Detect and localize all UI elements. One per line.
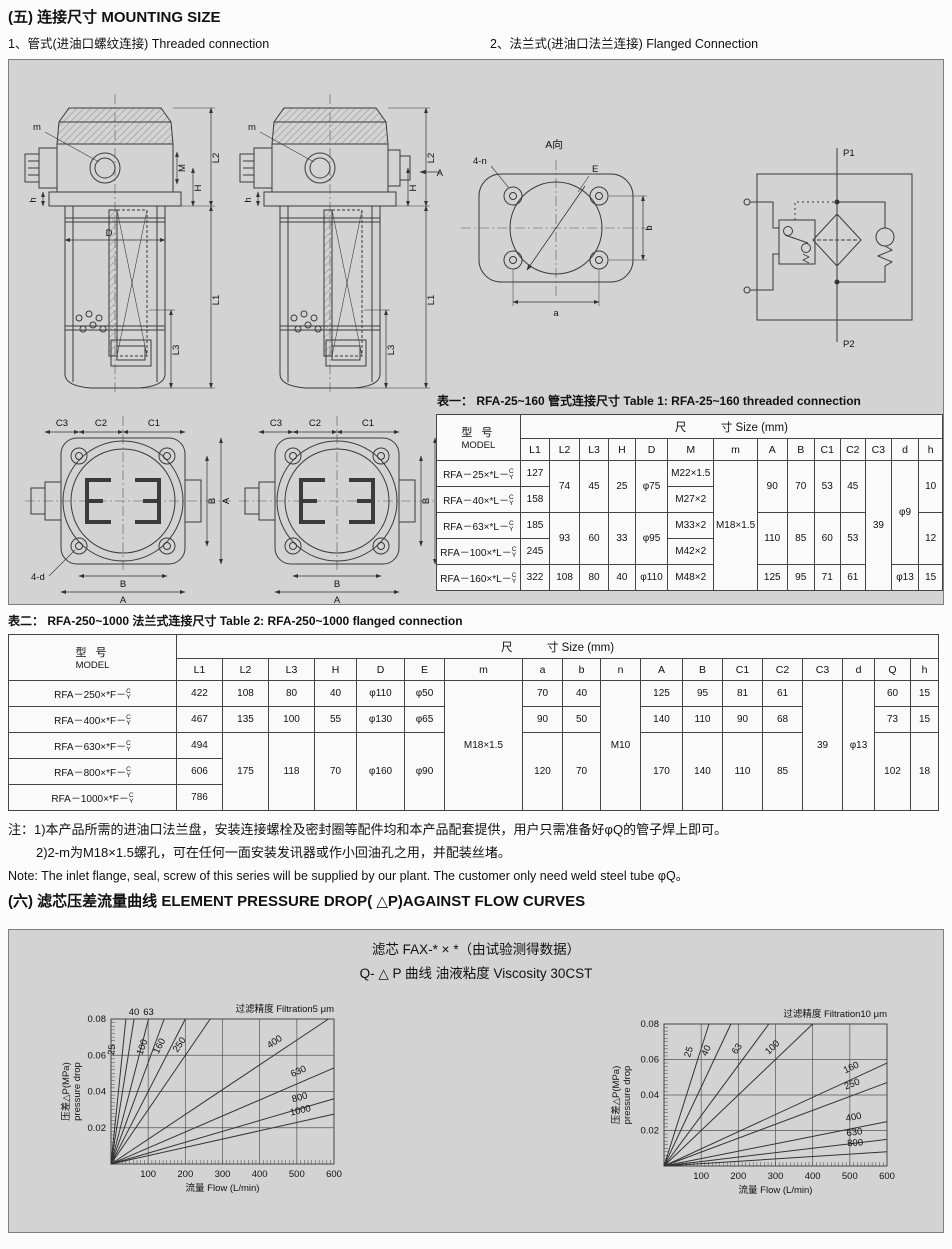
- dim-label-H: H: [193, 184, 204, 191]
- dim-label-C2: C2: [309, 418, 321, 429]
- threaded-connection-table: 型 号MODEL尺 寸 Size (mm)L1L2L3HDMmABC1C2C3d…: [436, 414, 943, 591]
- dim-label-B: B: [421, 498, 432, 504]
- value-cell: 108: [550, 565, 580, 591]
- curve-label-160: 160: [842, 1060, 861, 1077]
- model-cell: RFA－63×*L－CY: [437, 513, 521, 539]
- value-cell: 60: [814, 513, 840, 565]
- dim-label-h: h: [28, 197, 39, 202]
- model-cell: RFA－160×*L－CY: [437, 565, 521, 591]
- x-tick-label: 200: [730, 1171, 746, 1182]
- column-header-cell: L2: [550, 439, 580, 461]
- dim-label-C3: C3: [270, 418, 282, 429]
- value-cell: 100: [269, 707, 315, 733]
- value-cell: M48×2: [668, 565, 714, 591]
- flanged-connection-table: 型 号MODEL尺 寸 Size (mm)L1L2L3HDEmabnABC1C2…: [8, 634, 939, 811]
- value-cell: 53: [814, 461, 840, 513]
- column-header-cell: C1: [723, 659, 763, 681]
- section6-title: (六) 滤芯压差流量曲线 ELEMENT PRESSURE DROP( △P)A…: [8, 890, 585, 911]
- value-cell: φ130: [357, 707, 405, 733]
- y-tick-label: 0.02: [88, 1123, 107, 1134]
- value-cell: 70: [315, 733, 357, 811]
- model-cell: RFA－25×*L－CY: [437, 461, 521, 487]
- value-cell: M18×1.5: [714, 461, 758, 591]
- filtration-rating-label: 过滤精度 Filtration10 μm: [783, 1008, 887, 1020]
- value-cell: 15: [911, 681, 939, 707]
- value-cell: 50: [563, 707, 601, 733]
- model-cell: RFA－800×*F－CY: [9, 759, 177, 785]
- column-header-cell: H: [315, 659, 357, 681]
- value-cell: 70: [563, 733, 601, 811]
- y-tick-label: 0.04: [641, 1090, 660, 1101]
- mounting-drawings-panel: m M H L2 L1 L3 h D: [8, 59, 944, 605]
- x-tick-label: 400: [252, 1169, 268, 1180]
- curve-label-800: 800: [847, 1137, 864, 1149]
- curve-label-40: 40: [129, 1007, 140, 1018]
- curve-label-25: 25: [106, 1044, 118, 1056]
- value-cell: 170: [641, 733, 683, 811]
- value-cell: M10: [601, 681, 641, 811]
- subsection-flanged-title: 2、法兰式(进油口法兰连接) Flanged Connection: [490, 33, 758, 52]
- subsection-threaded-title: 1、管式(进油口螺纹连接) Threaded connection: [8, 33, 269, 52]
- value-cell: 25: [609, 461, 635, 513]
- value-cell: 140: [683, 733, 723, 811]
- curve-label-630: 630: [289, 1064, 308, 1080]
- value-cell: φ13: [843, 681, 875, 811]
- value-cell: M33×2: [668, 513, 714, 539]
- y-tick-label: 0.02: [641, 1126, 660, 1137]
- value-cell: 175: [223, 733, 269, 811]
- table-row: RFA－25×*L－CY127744525φ75M22×1.5M18×1.590…: [437, 461, 943, 487]
- filtration-rating-label: 过滤精度 Filtration5 μm: [236, 1003, 334, 1015]
- value-cell: 71: [814, 565, 840, 591]
- dim-label-A: A: [120, 595, 127, 606]
- value-cell: φ65: [405, 707, 445, 733]
- x-tick-label: 100: [693, 1171, 709, 1182]
- value-cell: 606: [177, 759, 223, 785]
- table1-container: 型 号MODEL尺 寸 Size (mm)L1L2L3HDMmABC1C2C3d…: [436, 414, 943, 591]
- flange-face-view-drawing: A向 E 4-n a b: [451, 134, 661, 339]
- value-cell: 322: [520, 565, 550, 591]
- flanged-filter-section-drawing: m H L2 L1 L3 h A: [234, 88, 444, 400]
- curve-label-250: 250: [843, 1077, 862, 1093]
- model-cell: RFA－40×*L－CY: [437, 487, 521, 513]
- column-header-cell: b: [563, 659, 601, 681]
- charts-title-line2: Q- △ P 曲线 油液粘度 Viscosity 30CST: [9, 962, 943, 982]
- table2-title: 表二： RFA-250~1000 法兰式连接尺寸 Table 2: RFA-25…: [8, 612, 463, 629]
- column-header-cell: A: [757, 439, 787, 461]
- value-cell: 60: [875, 681, 911, 707]
- y-tick-label: 0.04: [88, 1087, 107, 1098]
- value-cell: 494: [177, 733, 223, 759]
- port-label-p1: P1: [843, 148, 855, 159]
- dim-label-C3: C3: [56, 418, 68, 429]
- dim-label-C1: C1: [362, 418, 374, 429]
- x-axis-label: 流量 Flow (L/min): [739, 1184, 813, 1196]
- dim-label-L3: L3: [386, 345, 397, 356]
- value-cell: 95: [683, 681, 723, 707]
- pressure-drop-chart-5um: 1002003004005006000.020.040.060.08254063…: [57, 982, 357, 1212]
- value-cell: 15: [919, 565, 943, 591]
- y-tick-label: 0.08: [641, 1019, 660, 1030]
- datasheet-page: (五) 连接尺寸 MOUNTING SIZE 1、管式(进油口螺纹连接) Thr…: [0, 0, 952, 1249]
- dimension-annotations: E 4-n a b: [473, 156, 655, 319]
- curve-label-63: 63: [730, 1041, 745, 1056]
- column-header-cell: B: [683, 659, 723, 681]
- value-cell: 110: [683, 707, 723, 733]
- value-cell: φ9: [891, 461, 919, 565]
- dim-label-h: h: [243, 197, 254, 202]
- model-cell: RFA－400×*F－CY: [9, 707, 177, 733]
- dim-label-m: m: [33, 122, 41, 133]
- bottom-view-drawing-2: C3 C2 C1 B A B A: [237, 408, 447, 604]
- curve-label-250: 250: [171, 1035, 189, 1054]
- column-header-cell: H: [609, 439, 635, 461]
- value-cell: 125: [641, 681, 683, 707]
- dim-label-4d: 4-d: [31, 572, 45, 583]
- value-cell: 80: [579, 565, 608, 591]
- value-cell: 40: [315, 681, 357, 707]
- column-header-cell: m: [714, 439, 758, 461]
- value-cell: 158: [520, 487, 550, 513]
- column-header-cell: C2: [763, 659, 803, 681]
- dim-label-B: B: [120, 579, 126, 590]
- value-cell: 90: [723, 707, 763, 733]
- dim-label-L2: L2: [426, 153, 437, 164]
- value-cell: 60: [579, 513, 608, 565]
- column-header-cell: M: [668, 439, 714, 461]
- column-header-cell: L1: [177, 659, 223, 681]
- value-cell: 125: [757, 565, 787, 591]
- port-label-p2: P2: [843, 339, 855, 350]
- value-cell: 90: [523, 707, 563, 733]
- x-tick-label: 500: [842, 1171, 858, 1182]
- column-header-cell: C2: [840, 439, 866, 461]
- x-tick-label: 300: [215, 1169, 231, 1180]
- model-cell: RFA－250×*F－CY: [9, 681, 177, 707]
- view-title: A向: [545, 138, 563, 151]
- dimension-annotations: C3 C2 C1 B A B A: [259, 418, 446, 606]
- x-axis-label: 流量 Flow (L/min): [186, 1182, 260, 1194]
- column-header-cell: L3: [269, 659, 315, 681]
- value-cell: 467: [177, 707, 223, 733]
- value-cell: 45: [579, 461, 608, 513]
- curve-label-100: 100: [763, 1038, 782, 1057]
- column-header-cell: C3: [803, 659, 843, 681]
- section5-title: (五) 连接尺寸 MOUNTING SIZE: [8, 6, 221, 27]
- y-axis-label-cn: 压差△P(MPa): [60, 1062, 72, 1121]
- y-tick-label: 0.08: [88, 1014, 107, 1025]
- column-header-cell: L2: [223, 659, 269, 681]
- bottom-view-drawing-1: C3 C2 C1 B A B A 4-d: [23, 408, 233, 604]
- value-cell: 93: [550, 513, 580, 565]
- value-cell: φ75: [635, 461, 668, 513]
- dim-label-4n: 4-n: [473, 156, 487, 167]
- column-header-cell: L1: [520, 439, 550, 461]
- x-tick-label: 400: [805, 1171, 821, 1182]
- value-cell: 102: [875, 733, 911, 811]
- x-tick-label: 200: [177, 1169, 193, 1180]
- dim-label-a: a: [553, 308, 559, 319]
- x-tick-label: 600: [879, 1171, 895, 1182]
- pressure-drop-charts-panel: 滤芯 FAX-* × *（由试验测得数据） Q- △ P 曲线 油液粘度 Vis…: [8, 929, 944, 1233]
- model-header-cell: 型 号MODEL: [9, 635, 177, 681]
- x-tick-label: 500: [289, 1169, 305, 1180]
- column-header-cell: B: [787, 439, 814, 461]
- dim-label-m: m: [248, 122, 256, 133]
- value-cell: 120: [523, 733, 563, 811]
- dim-label-A: A: [221, 497, 232, 504]
- column-header-cell: D: [635, 439, 668, 461]
- value-cell: 33: [609, 513, 635, 565]
- x-tick-label: 300: [768, 1171, 784, 1182]
- column-header-cell: m: [445, 659, 523, 681]
- column-header-cell: L3: [579, 439, 608, 461]
- value-cell: 61: [763, 681, 803, 707]
- value-cell: 12: [919, 513, 943, 565]
- dim-label-C1: C1: [148, 418, 160, 429]
- dim-label-L2: L2: [211, 153, 222, 164]
- column-header-cell: A: [641, 659, 683, 681]
- value-cell: 80: [269, 681, 315, 707]
- curve-label-63: 63: [143, 1007, 154, 1018]
- note-line-2: 2)2-m为M18×1.5螺孔，可在任何一面安装发讯器或作小回油孔之用，并配装丝…: [36, 842, 511, 861]
- hydraulic-circuit-symbol: P1 P2: [727, 142, 937, 352]
- value-cell: 55: [315, 707, 357, 733]
- dim-label-L1: L1: [211, 295, 222, 306]
- column-header-cell: C1: [814, 439, 840, 461]
- value-cell: 108: [223, 681, 269, 707]
- value-cell: 40: [563, 681, 601, 707]
- value-cell: φ160: [357, 733, 405, 811]
- value-cell: 95: [787, 565, 814, 591]
- value-cell: 40: [609, 565, 635, 591]
- value-cell: 73: [875, 707, 911, 733]
- note-line-1: 注：1)本产品所需的进油口法兰盘，安装连接螺栓及密封圈等配件均和本产品配套提供，…: [8, 819, 727, 838]
- value-cell: 140: [641, 707, 683, 733]
- dim-label-E: E: [592, 164, 598, 175]
- value-cell: φ95: [635, 513, 668, 565]
- value-cell: 39: [803, 681, 843, 811]
- value-cell: 15: [911, 707, 939, 733]
- value-cell: 786: [177, 785, 223, 811]
- model-cell: RFA－100×*L－CY: [437, 539, 521, 565]
- value-cell: φ90: [405, 733, 445, 811]
- column-header-cell: C3: [866, 439, 892, 461]
- value-cell: 53: [840, 513, 866, 565]
- value-cell: 61: [840, 565, 866, 591]
- value-cell: φ110: [635, 565, 668, 591]
- value-cell: 74: [550, 461, 580, 513]
- column-header-cell: d: [843, 659, 875, 681]
- value-cell: 245: [520, 539, 550, 565]
- y-tick-label: 0.06: [88, 1050, 107, 1061]
- value-cell: 70: [523, 681, 563, 707]
- curve-label-400: 400: [265, 1033, 284, 1051]
- y-axis-label-en: pressure drop: [622, 1066, 633, 1125]
- threaded-filter-section-drawing: m M H L2 L1 L3 h D: [19, 88, 229, 400]
- column-header-cell: Q: [875, 659, 911, 681]
- y-axis-label-cn: 压差△P(MPa): [610, 1066, 622, 1125]
- value-cell: 110: [757, 513, 787, 565]
- table2-container: 型 号MODEL尺 寸 Size (mm)L1L2L3HDEmabnABC1C2…: [8, 634, 939, 811]
- dim-label-B: B: [207, 498, 218, 504]
- value-cell: 70: [787, 461, 814, 513]
- dim-label-D: D: [106, 228, 113, 239]
- value-cell: 85: [763, 733, 803, 811]
- curve-label-1000: 1000: [289, 1103, 312, 1118]
- column-header-cell: d: [891, 439, 919, 461]
- x-tick-label: 100: [140, 1169, 156, 1180]
- column-header-cell: h: [919, 439, 943, 461]
- model-cell: RFA－1000×*F－CY: [9, 785, 177, 811]
- value-cell: M22×1.5: [668, 461, 714, 487]
- y-tick-label: 0.06: [641, 1055, 660, 1066]
- value-cell: φ13: [891, 565, 919, 591]
- value-cell: 135: [223, 707, 269, 733]
- x-tick-label: 600: [326, 1169, 342, 1180]
- table1-title: 表一： RFA-25~160 管式连接尺寸 Table 1: RFA-25~16…: [437, 392, 861, 409]
- view-direction-label-A: A: [437, 168, 444, 179]
- y-axis-label-en: pressure drop: [72, 1062, 83, 1121]
- note-line-3: Note: The inlet flange, seal, screw of t…: [8, 865, 688, 884]
- value-cell: M27×2: [668, 487, 714, 513]
- size-header-cell: 尺 寸 Size (mm): [520, 415, 942, 439]
- value-cell: 90: [757, 461, 787, 513]
- value-cell: φ50: [405, 681, 445, 707]
- dim-label-L3: L3: [171, 345, 182, 356]
- dim-label-b: b: [644, 225, 655, 230]
- column-header-cell: D: [357, 659, 405, 681]
- curve-label-160: 160: [151, 1037, 168, 1056]
- dim-label-C2: C2: [95, 418, 107, 429]
- value-cell: 185: [520, 513, 550, 539]
- value-cell: 18: [911, 733, 939, 811]
- dim-label-H: H: [408, 184, 419, 191]
- dim-label-B: B: [334, 579, 340, 590]
- column-header-cell: E: [405, 659, 445, 681]
- value-cell: M18×1.5: [445, 681, 523, 811]
- dim-label-L1: L1: [426, 295, 437, 306]
- column-header-cell: n: [601, 659, 641, 681]
- table-row: RFA－250×*F－CY4221088040φ110φ50M18×1.5704…: [9, 681, 939, 707]
- curve-label-25: 25: [682, 1045, 696, 1058]
- value-cell: 85: [787, 513, 814, 565]
- value-cell: 81: [723, 681, 763, 707]
- size-header-cell: 尺 寸 Size (mm): [177, 635, 939, 659]
- value-cell: 118: [269, 733, 315, 811]
- value-cell: 45: [840, 461, 866, 513]
- dim-label-M: M: [177, 164, 188, 172]
- model-cell: RFA－630×*F－CY: [9, 733, 177, 759]
- charts-title-line1: 滤芯 FAX-* × *（由试验测得数据）: [9, 938, 943, 958]
- column-header-cell: a: [523, 659, 563, 681]
- value-cell: 127: [520, 461, 550, 487]
- dim-label-A: A: [334, 595, 341, 606]
- curve-label-400: 400: [845, 1111, 863, 1125]
- column-header-cell: h: [911, 659, 939, 681]
- value-cell: φ110: [357, 681, 405, 707]
- pressure-drop-chart-10um: 1002003004005006000.020.040.060.08254063…: [607, 982, 917, 1212]
- value-cell: 39: [866, 461, 892, 591]
- value-cell: 422: [177, 681, 223, 707]
- value-cell: 68: [763, 707, 803, 733]
- value-cell: M42×2: [668, 539, 714, 565]
- model-header-cell: 型 号MODEL: [437, 415, 521, 461]
- value-cell: 10: [919, 461, 943, 513]
- value-cell: 110: [723, 733, 763, 811]
